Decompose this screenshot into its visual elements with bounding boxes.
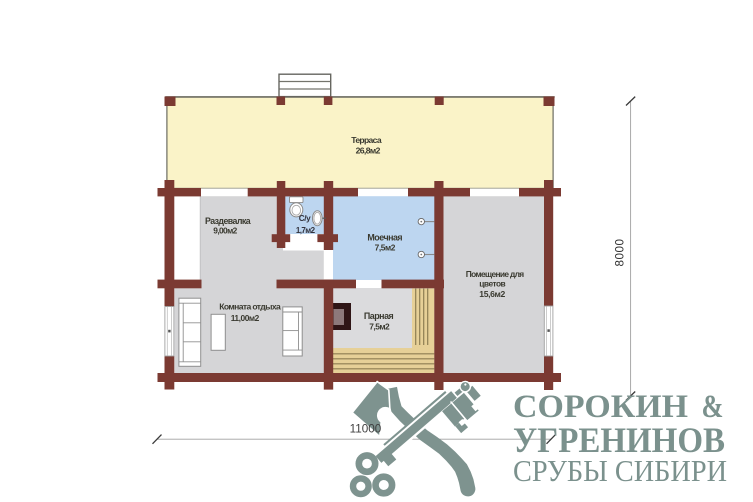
svg-text:С/у: С/у — [299, 214, 311, 223]
svg-text:Моечная: Моечная — [367, 232, 402, 242]
svg-text:7,5м2: 7,5м2 — [375, 243, 396, 253]
svg-text:Помещение для: Помещение для — [466, 269, 525, 279]
svg-text:Комната отдыха: Комната отдыха — [219, 301, 281, 311]
svg-text:1,7м2: 1,7м2 — [296, 226, 316, 235]
svg-text:9,00м2: 9,00м2 — [213, 226, 237, 236]
svg-text:15,6м2: 15,6м2 — [479, 289, 505, 299]
svg-text:26,8м2: 26,8м2 — [356, 146, 381, 156]
svg-text:Терраса: Терраса — [351, 135, 382, 145]
svg-text:СРУБЫ СИБИРИ: СРУБЫ СИБИРИ — [513, 454, 727, 488]
svg-text:11000: 11000 — [350, 423, 382, 436]
svg-text:7,5м2: 7,5м2 — [369, 321, 390, 331]
svg-text:цветов: цветов — [479, 279, 505, 289]
svg-text:8000: 8000 — [614, 239, 627, 267]
svg-text:Парная: Парная — [364, 311, 394, 321]
svg-text:11,00м2: 11,00м2 — [231, 313, 260, 323]
